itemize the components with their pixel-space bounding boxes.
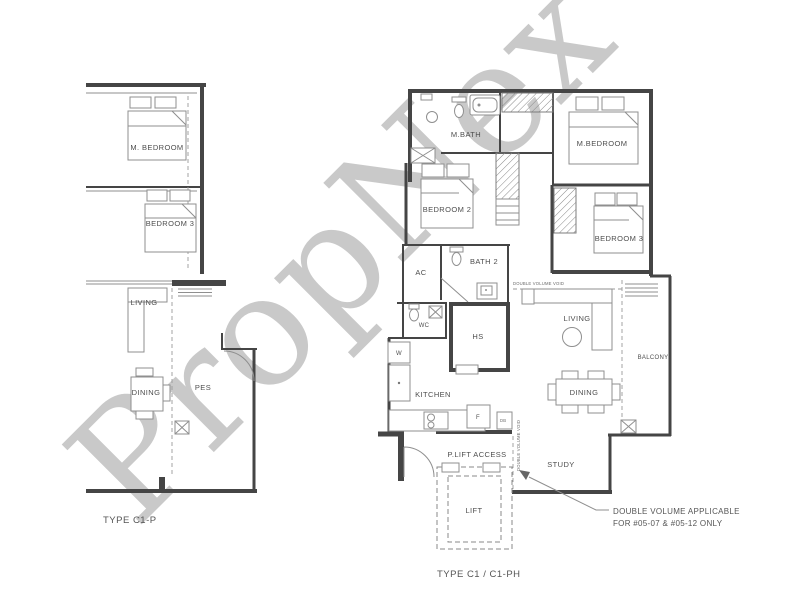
right-plan: M.BATH M.BEDROOM BEDROOM 2 BEDROOM 3 BAT… [378, 89, 740, 580]
right-plan-title: TYPE C1 / C1-PH [437, 569, 521, 580]
double-volume-annotation: DOUBLE VOLUME APPLICABLE FOR #05-07 & #0… [519, 470, 740, 528]
room-label-lift: LIFT [465, 506, 482, 515]
room-label-left-bedroom-3: BEDROOM 3 [146, 219, 195, 228]
room-label-dining: DINING [570, 388, 599, 397]
room-label-m-bath: M.BATH [451, 130, 481, 139]
room-label-ac: AC [415, 268, 426, 277]
floorplan-canvas: PropNex [0, 0, 800, 592]
room-label-hs: HS [472, 332, 483, 341]
void-label-vertical: DOUBLE VOLUME VOID [516, 420, 521, 471]
void-label-horizontal: DOUBLE VOLUME VOID [513, 281, 564, 286]
appliance-label-db: DB [500, 418, 506, 423]
room-label-left-living: LIVING [131, 298, 158, 307]
room-label-kitchen: KITCHEN [415, 390, 451, 399]
left-plan-title: TYPE C1-P [103, 515, 157, 526]
annotation-line-2: FOR #05-07 & #05-12 ONLY [613, 519, 723, 528]
room-label-left-dining: DINING [132, 388, 161, 397]
room-label-private-lift-access: P.LIFT ACCESS [447, 450, 506, 459]
appliance-label-washer: W [396, 351, 402, 357]
annotation-line-1: DOUBLE VOLUME APPLICABLE [613, 507, 740, 516]
room-label-study: STUDY [547, 460, 574, 469]
floorplan-page: PropNex [0, 0, 800, 592]
annotation-arrowhead [519, 470, 530, 480]
room-label-bedroom-2: BEDROOM 2 [423, 205, 472, 214]
room-label-living: LIVING [564, 314, 591, 323]
room-label-balcony: BALCONY [638, 355, 669, 361]
room-label-bedroom-3: BEDROOM 3 [595, 234, 644, 243]
room-label-bath-2: BATH 2 [470, 257, 498, 266]
room-label-left-pes: PES [195, 383, 211, 392]
appliance-label-fridge: F [476, 415, 480, 421]
room-label-wc: WC [419, 323, 430, 329]
room-label-left-m-bedroom: M. BEDROOM [130, 143, 183, 152]
room-label-m-bedroom: M.BEDROOM [577, 139, 628, 148]
